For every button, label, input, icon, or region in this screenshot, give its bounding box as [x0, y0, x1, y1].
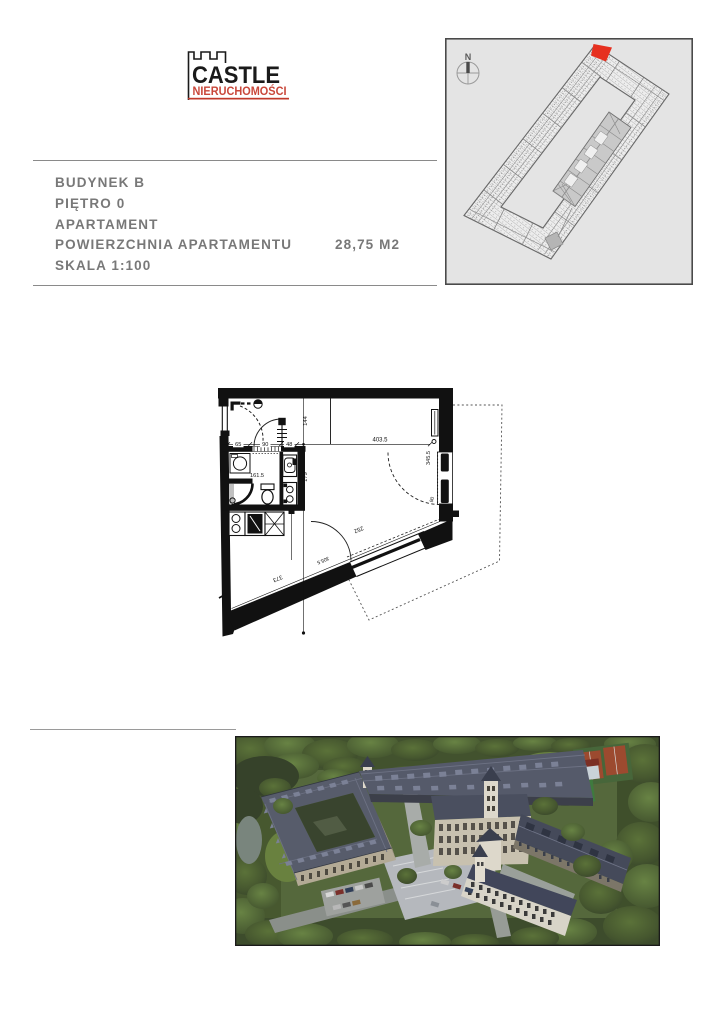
- svg-text:252: 252: [353, 524, 364, 533]
- svg-text:NIERUCHOMOŚCI: NIERUCHOMOŚCI: [193, 85, 287, 98]
- svg-text:161.5: 161.5: [250, 473, 264, 479]
- svg-text:90: 90: [262, 442, 268, 448]
- svg-text:48: 48: [286, 442, 292, 448]
- svg-text:N: N: [465, 52, 472, 62]
- svg-text:90: 90: [429, 496, 436, 503]
- svg-text:403.5: 403.5: [372, 438, 388, 444]
- svg-text:65: 65: [235, 442, 241, 448]
- svg-text:144: 144: [303, 415, 309, 425]
- svg-text:345.5: 345.5: [426, 451, 432, 465]
- svg-text:305.5: 305.5: [316, 555, 330, 565]
- svg-text:373: 373: [272, 573, 283, 582]
- svg-text:179: 179: [303, 472, 309, 482]
- svg-text:CASTLE: CASTLE: [192, 62, 280, 89]
